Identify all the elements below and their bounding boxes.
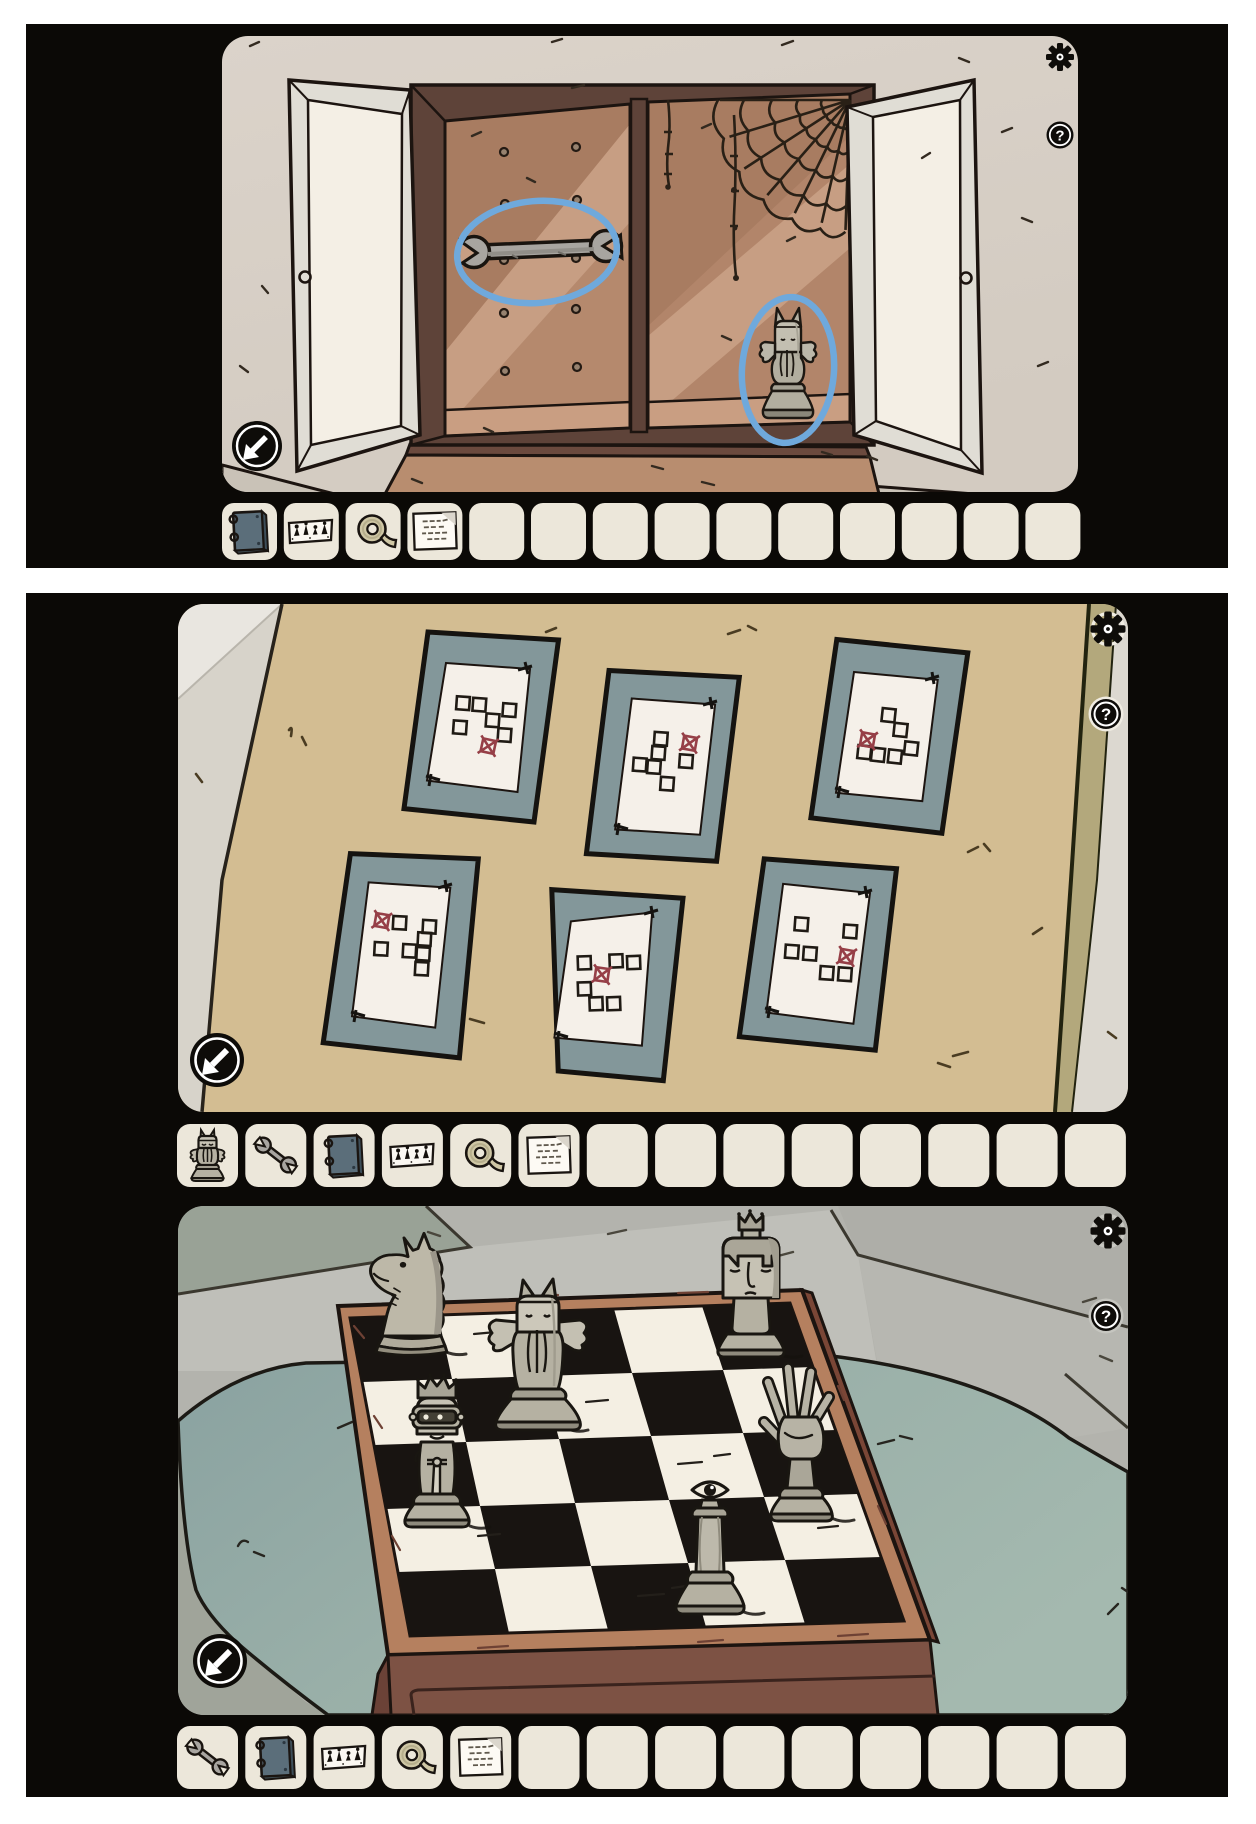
svg-text:?: ? <box>1101 1307 1111 1326</box>
svg-text:?: ? <box>1101 705 1111 724</box>
svg-text:?: ? <box>1055 128 1064 145</box>
